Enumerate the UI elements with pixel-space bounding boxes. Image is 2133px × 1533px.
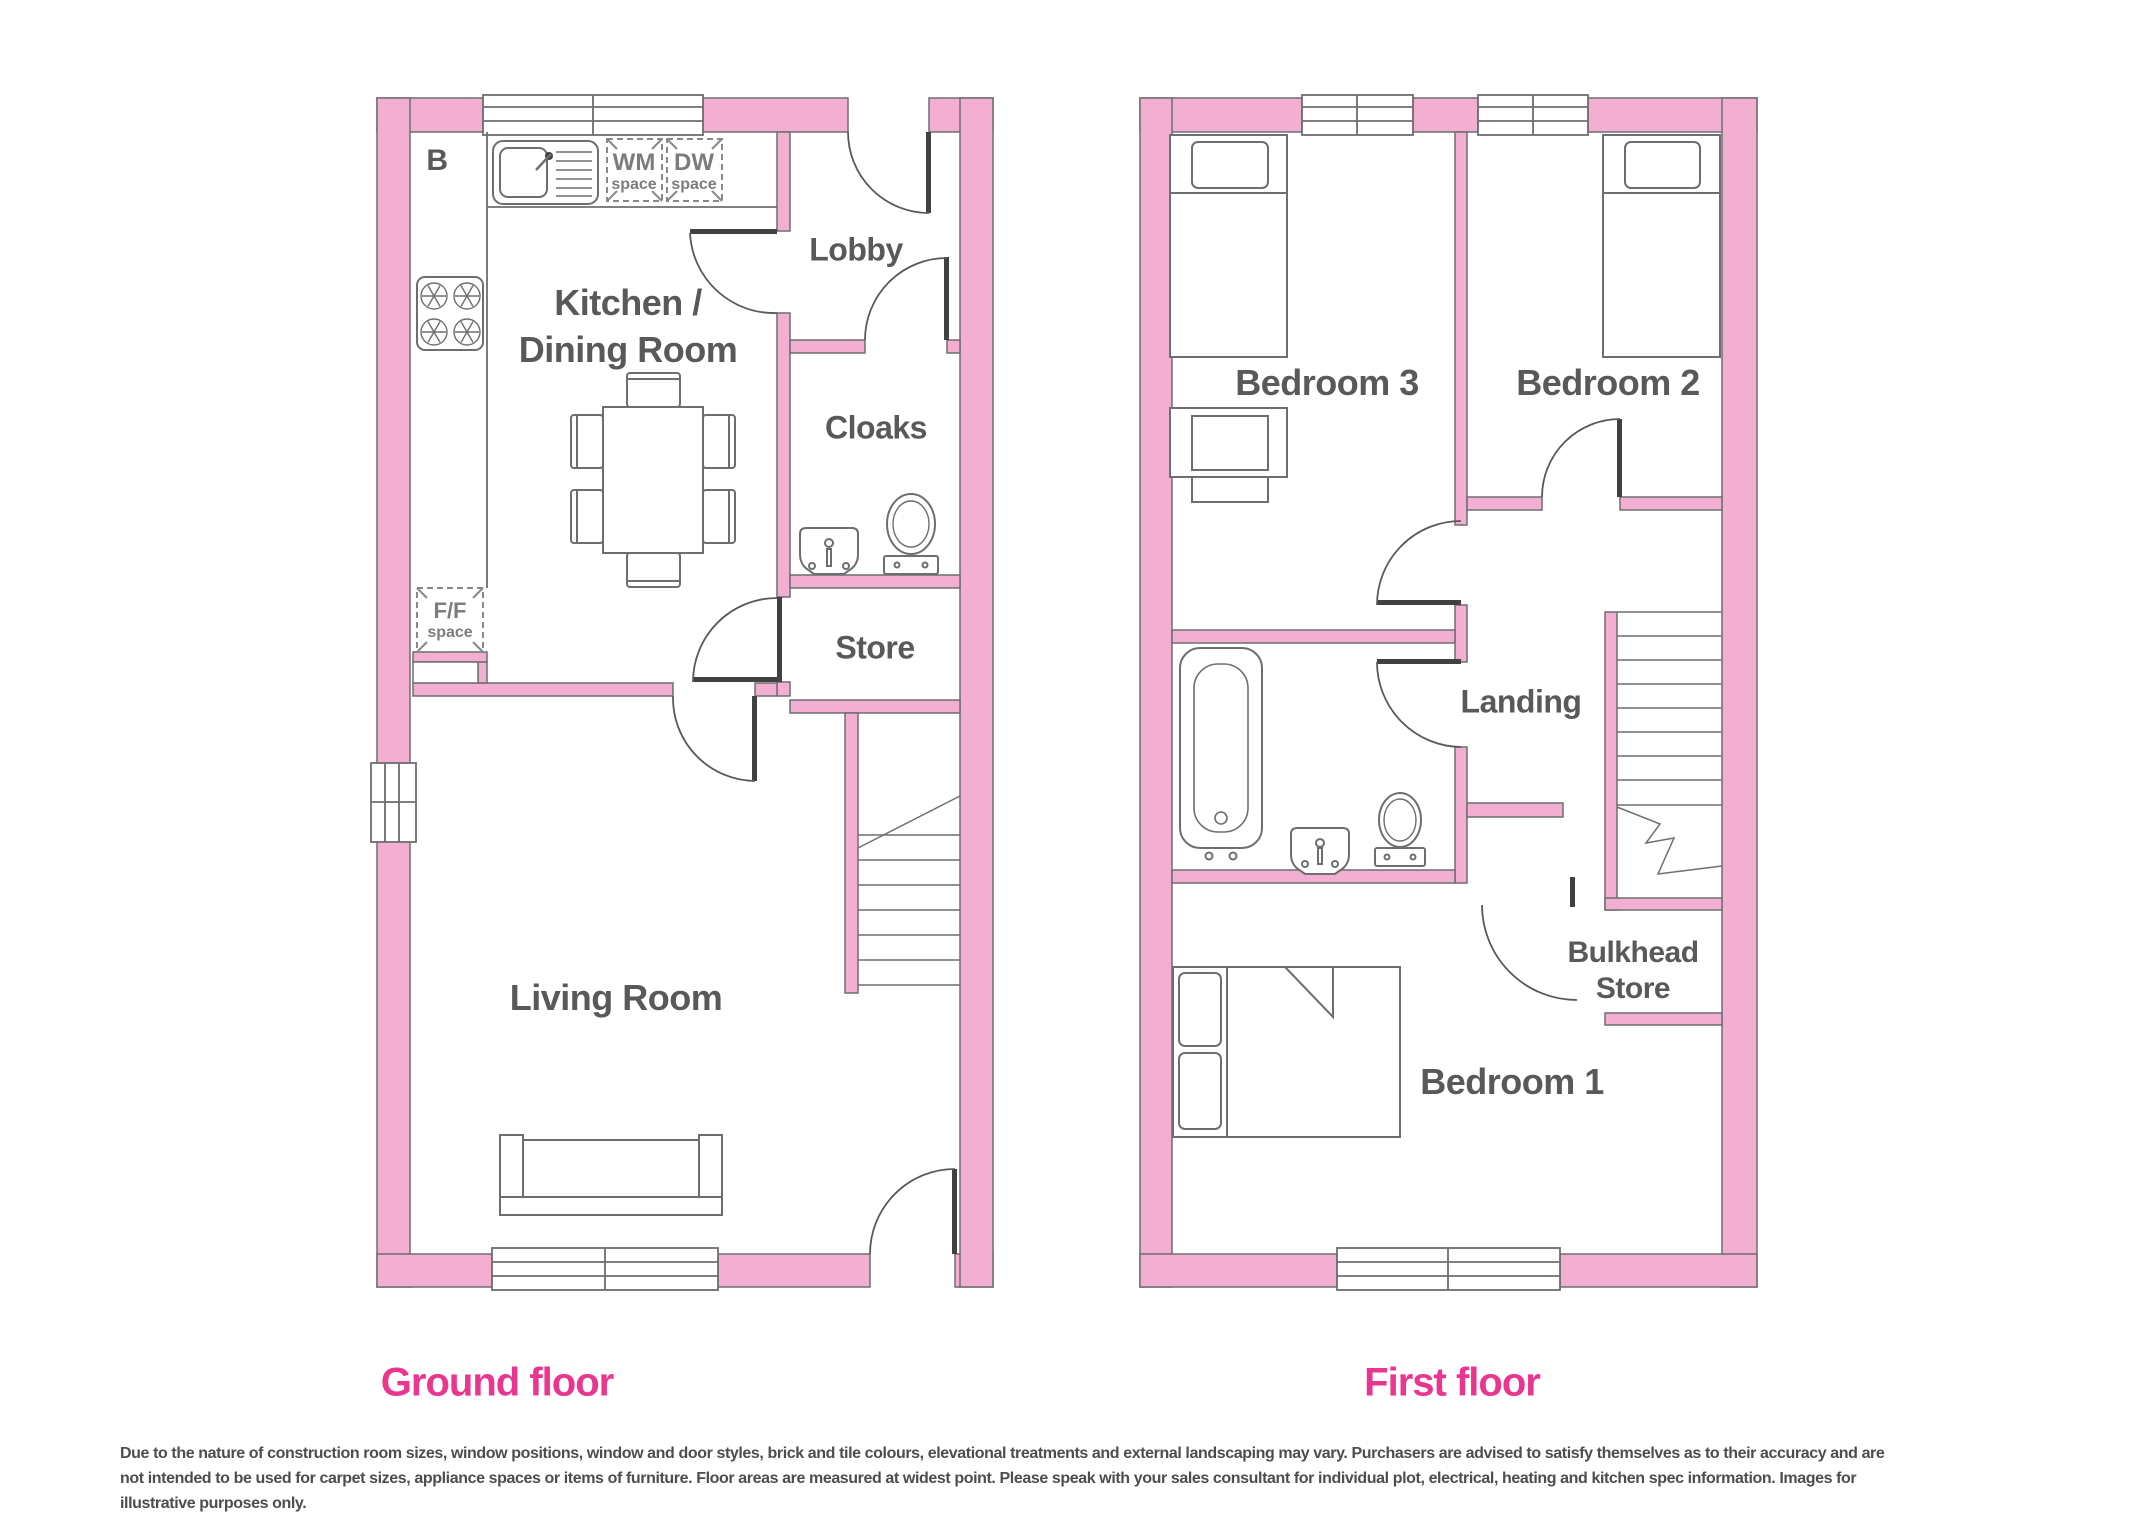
bathroom-door-leaf <box>1377 659 1461 664</box>
bedroom2-door-leaf <box>1617 419 1622 497</box>
bedroom1-window <box>1337 1248 1560 1290</box>
bulkhead-store-label-line1: Bulkhead <box>1567 936 1698 970</box>
chimney-recess <box>413 662 478 683</box>
dining-set <box>571 373 735 587</box>
first-floor-plan <box>1140 95 1757 1290</box>
disclaimer-line: illustrative purposes only. <box>120 1491 2050 1516</box>
wm-space-label: WM <box>613 149 656 177</box>
boiler-label: B <box>426 144 447 178</box>
living-room-side-window <box>371 763 416 842</box>
dw-space-sublabel: space <box>671 176 716 194</box>
bathroom-toilet <box>1375 793 1425 866</box>
kitchen-label-line2: Dining Room <box>519 329 737 371</box>
sofa <box>500 1135 722 1215</box>
cloaks-door-leaf <box>944 257 949 340</box>
store-label: Store <box>835 630 914 667</box>
disclaimer-line: not intended to be used for carpet sizes… <box>120 1466 2050 1491</box>
living-room-label: Living Room <box>510 977 723 1019</box>
bedroom1-label: Bedroom 1 <box>1420 1061 1604 1103</box>
bathroom-basin <box>1291 828 1349 874</box>
ground-staircase <box>858 796 960 985</box>
floor-plan-canvas <box>0 0 2133 1533</box>
first-staircase <box>1617 612 1722 874</box>
bedroom1-door-jamb <box>1570 877 1575 907</box>
bedroom2-label: Bedroom 2 <box>1516 362 1700 404</box>
cloaks-basin <box>800 528 858 574</box>
wm-space-sublabel: space <box>611 176 656 194</box>
living-door-leaf <box>752 696 757 781</box>
kitchen-label-line1: Kitchen / <box>554 282 702 324</box>
bedroom3-unit <box>1170 408 1287 502</box>
cloaks-toilet <box>884 494 938 574</box>
lobby-label: Lobby <box>809 232 902 269</box>
bulkhead-store-label-line2: Store <box>1596 972 1670 1006</box>
kitchen-door-leaf <box>690 229 777 234</box>
first-floor-heading: First floor <box>1364 1361 1540 1406</box>
cloaks-label: Cloaks <box>825 410 927 447</box>
bedroom3-bed <box>1170 135 1287 357</box>
floorplan-page: B WM space DW space Kitchen / Dining Roo… <box>0 0 2133 1533</box>
bedroom1-bed <box>1173 967 1400 1137</box>
disclaimer-line: Due to the nature of construction room s… <box>120 1441 2050 1466</box>
ground-floor-heading: Ground floor <box>381 1361 613 1406</box>
kitchen-window <box>483 95 703 135</box>
ff-space-sublabel: space <box>427 624 472 642</box>
ground-floor-plan <box>371 95 993 1290</box>
ground-door-arcs <box>673 132 955 1254</box>
landing-label: Landing <box>1461 684 1582 721</box>
living-room-front-window <box>492 1248 718 1290</box>
front-door-leaf <box>952 1169 957 1254</box>
bedroom3-window <box>1302 95 1413 135</box>
bedroom3-label: Bedroom 3 <box>1235 362 1419 404</box>
store-door-leaf <box>693 677 777 682</box>
dw-space-label: DW <box>674 149 714 177</box>
kitchen-sink <box>493 141 598 204</box>
store-door-jamb <box>777 597 782 682</box>
back-door-leaf <box>926 132 931 213</box>
disclaimer: Due to the nature of construction room s… <box>120 1441 2050 1516</box>
hob <box>417 277 483 350</box>
bedroom2-bed <box>1603 135 1720 357</box>
bathtub <box>1180 648 1262 860</box>
ff-space-label: F/F <box>434 598 467 624</box>
bedroom3-door-leaf <box>1377 600 1461 605</box>
bedroom2-window <box>1478 95 1588 135</box>
